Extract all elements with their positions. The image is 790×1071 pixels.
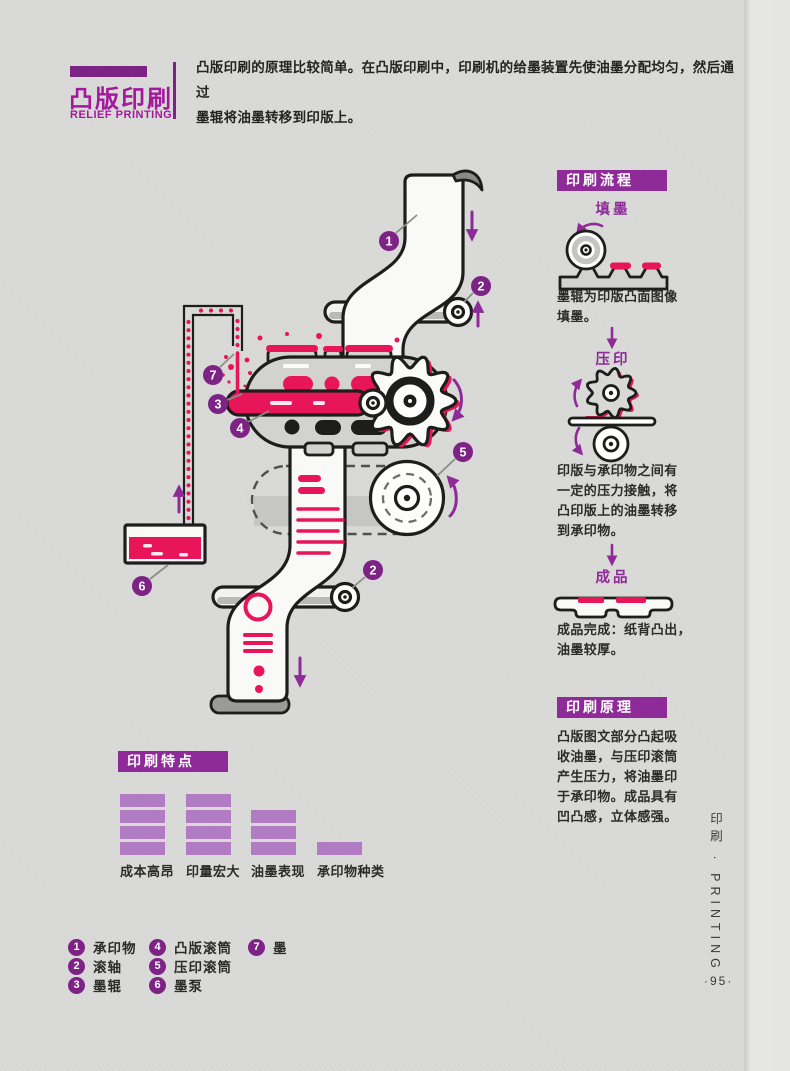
step-label-product: 成品 bbox=[557, 566, 669, 587]
feature-bars-volume bbox=[186, 790, 231, 855]
legend-item-roller: 2 滚轴 bbox=[68, 956, 122, 976]
svg-text:1: 1 bbox=[386, 235, 393, 249]
feature-bars-ink bbox=[251, 790, 296, 855]
legend-badge: 6 bbox=[149, 977, 166, 994]
feature-bars-cost bbox=[120, 790, 165, 855]
badge-impression-cylinder: 5 bbox=[453, 442, 473, 462]
svg-text:2: 2 bbox=[478, 280, 485, 294]
badge-roller-bottom: 2 bbox=[363, 560, 383, 580]
printed-sheet-icon bbox=[555, 598, 672, 617]
badge-roller-top: 2 bbox=[471, 276, 491, 296]
badge-ink-pump: 6 bbox=[132, 576, 152, 596]
badge-plate-cylinder: 4 bbox=[230, 418, 250, 438]
legend-item-ink-roller: 3 墨辊 bbox=[68, 975, 122, 995]
badge-substrate: 1 bbox=[379, 231, 399, 251]
features-heading: 印刷特点 bbox=[118, 751, 228, 772]
legend-item-impression-cylinder: 5 压印滚筒 bbox=[149, 956, 232, 976]
legend-item-ink: 7 墨 bbox=[248, 937, 288, 957]
svg-text:6: 6 bbox=[139, 580, 146, 594]
impressing-caption: 印版与承印物之间有 一定的压力接触，将 凸印版上的油墨转移 到承印物。 bbox=[557, 461, 707, 541]
inking-step-icon bbox=[556, 218, 671, 292]
impression-cylinder bbox=[371, 462, 444, 535]
press-diagram: 1 2 3 4 5 6 7 2 bbox=[55, 160, 545, 740]
ink-roller-end-wheel bbox=[360, 390, 386, 416]
step-label-inking: 填墨 bbox=[557, 198, 669, 219]
substrate-sheet-icon bbox=[569, 418, 655, 425]
impressing-step-icon bbox=[563, 366, 663, 462]
ink-fountain bbox=[125, 525, 205, 563]
principle-heading: 印刷原理 bbox=[557, 697, 667, 718]
feature-bars-substrate bbox=[317, 790, 362, 855]
badge-ink-roller: 3 bbox=[208, 394, 228, 414]
legend-badge: 3 bbox=[68, 977, 85, 994]
title-accent-bar bbox=[70, 66, 147, 77]
header-divider bbox=[173, 62, 176, 119]
legend-badge: 2 bbox=[68, 958, 85, 975]
product-caption: 成品完成：纸背凸出， 油墨较厚。 bbox=[557, 620, 717, 660]
intro-text: 凸版印刷的原理比较简单。在凸版印刷中，印刷机的给墨装置先使油墨分配均匀，然后通过… bbox=[196, 55, 741, 130]
inking-caption: 墨辊为印版凸面图像 填墨。 bbox=[557, 287, 707, 327]
impression-roller-icon bbox=[594, 427, 628, 461]
svg-text:2: 2 bbox=[370, 564, 377, 578]
legend-item-ink-pump: 6 墨泵 bbox=[149, 975, 203, 995]
principle-body: 凸版图文部分凸起吸 收油墨，与压印滚筒 产生压力，将油墨印 于承印物。成品具有 … bbox=[557, 727, 709, 827]
ink-roller bbox=[227, 391, 369, 415]
legend-item-substrate: 1 承印物 bbox=[68, 937, 137, 957]
printing-plate-icon bbox=[560, 268, 667, 289]
legend-badge: 1 bbox=[68, 939, 85, 956]
ink-roller-icon bbox=[567, 231, 605, 269]
svg-text:7: 7 bbox=[210, 369, 217, 383]
feature-label-volume: 印量宏大 bbox=[186, 861, 240, 880]
process-heading: 印刷流程 bbox=[557, 170, 667, 191]
legend-badge: 4 bbox=[149, 939, 166, 956]
page-number: ·95· bbox=[704, 974, 733, 988]
product-step-icon bbox=[551, 590, 676, 622]
top-roller-wheel bbox=[445, 299, 472, 326]
feature-label-substrate: 承印物种类 bbox=[317, 861, 385, 880]
legend-badge: 7 bbox=[248, 939, 265, 956]
book-page: 凸版印刷 RELIEF PRINTING 凸版印刷的原理比较简单。在凸版印刷中，… bbox=[0, 0, 790, 1071]
feature-label-ink: 油墨表现 bbox=[251, 861, 305, 880]
svg-text:4: 4 bbox=[237, 422, 244, 436]
badge-ink: 7 bbox=[203, 365, 223, 385]
cylinder-rotation-arrow bbox=[449, 478, 456, 516]
legend-badge: 5 bbox=[149, 958, 166, 975]
legend-item-plate-cylinder: 4 凸版滚筒 bbox=[149, 937, 232, 957]
svg-text:5: 5 bbox=[460, 446, 467, 460]
page-subtitle: RELIEF PRINTING bbox=[70, 109, 172, 121]
svg-text:3: 3 bbox=[215, 398, 222, 412]
page-edge bbox=[744, 0, 790, 1071]
feature-label-cost: 成本高昂 bbox=[120, 861, 174, 880]
chapter-side-label: 印刷 · PRINTING bbox=[706, 812, 725, 987]
